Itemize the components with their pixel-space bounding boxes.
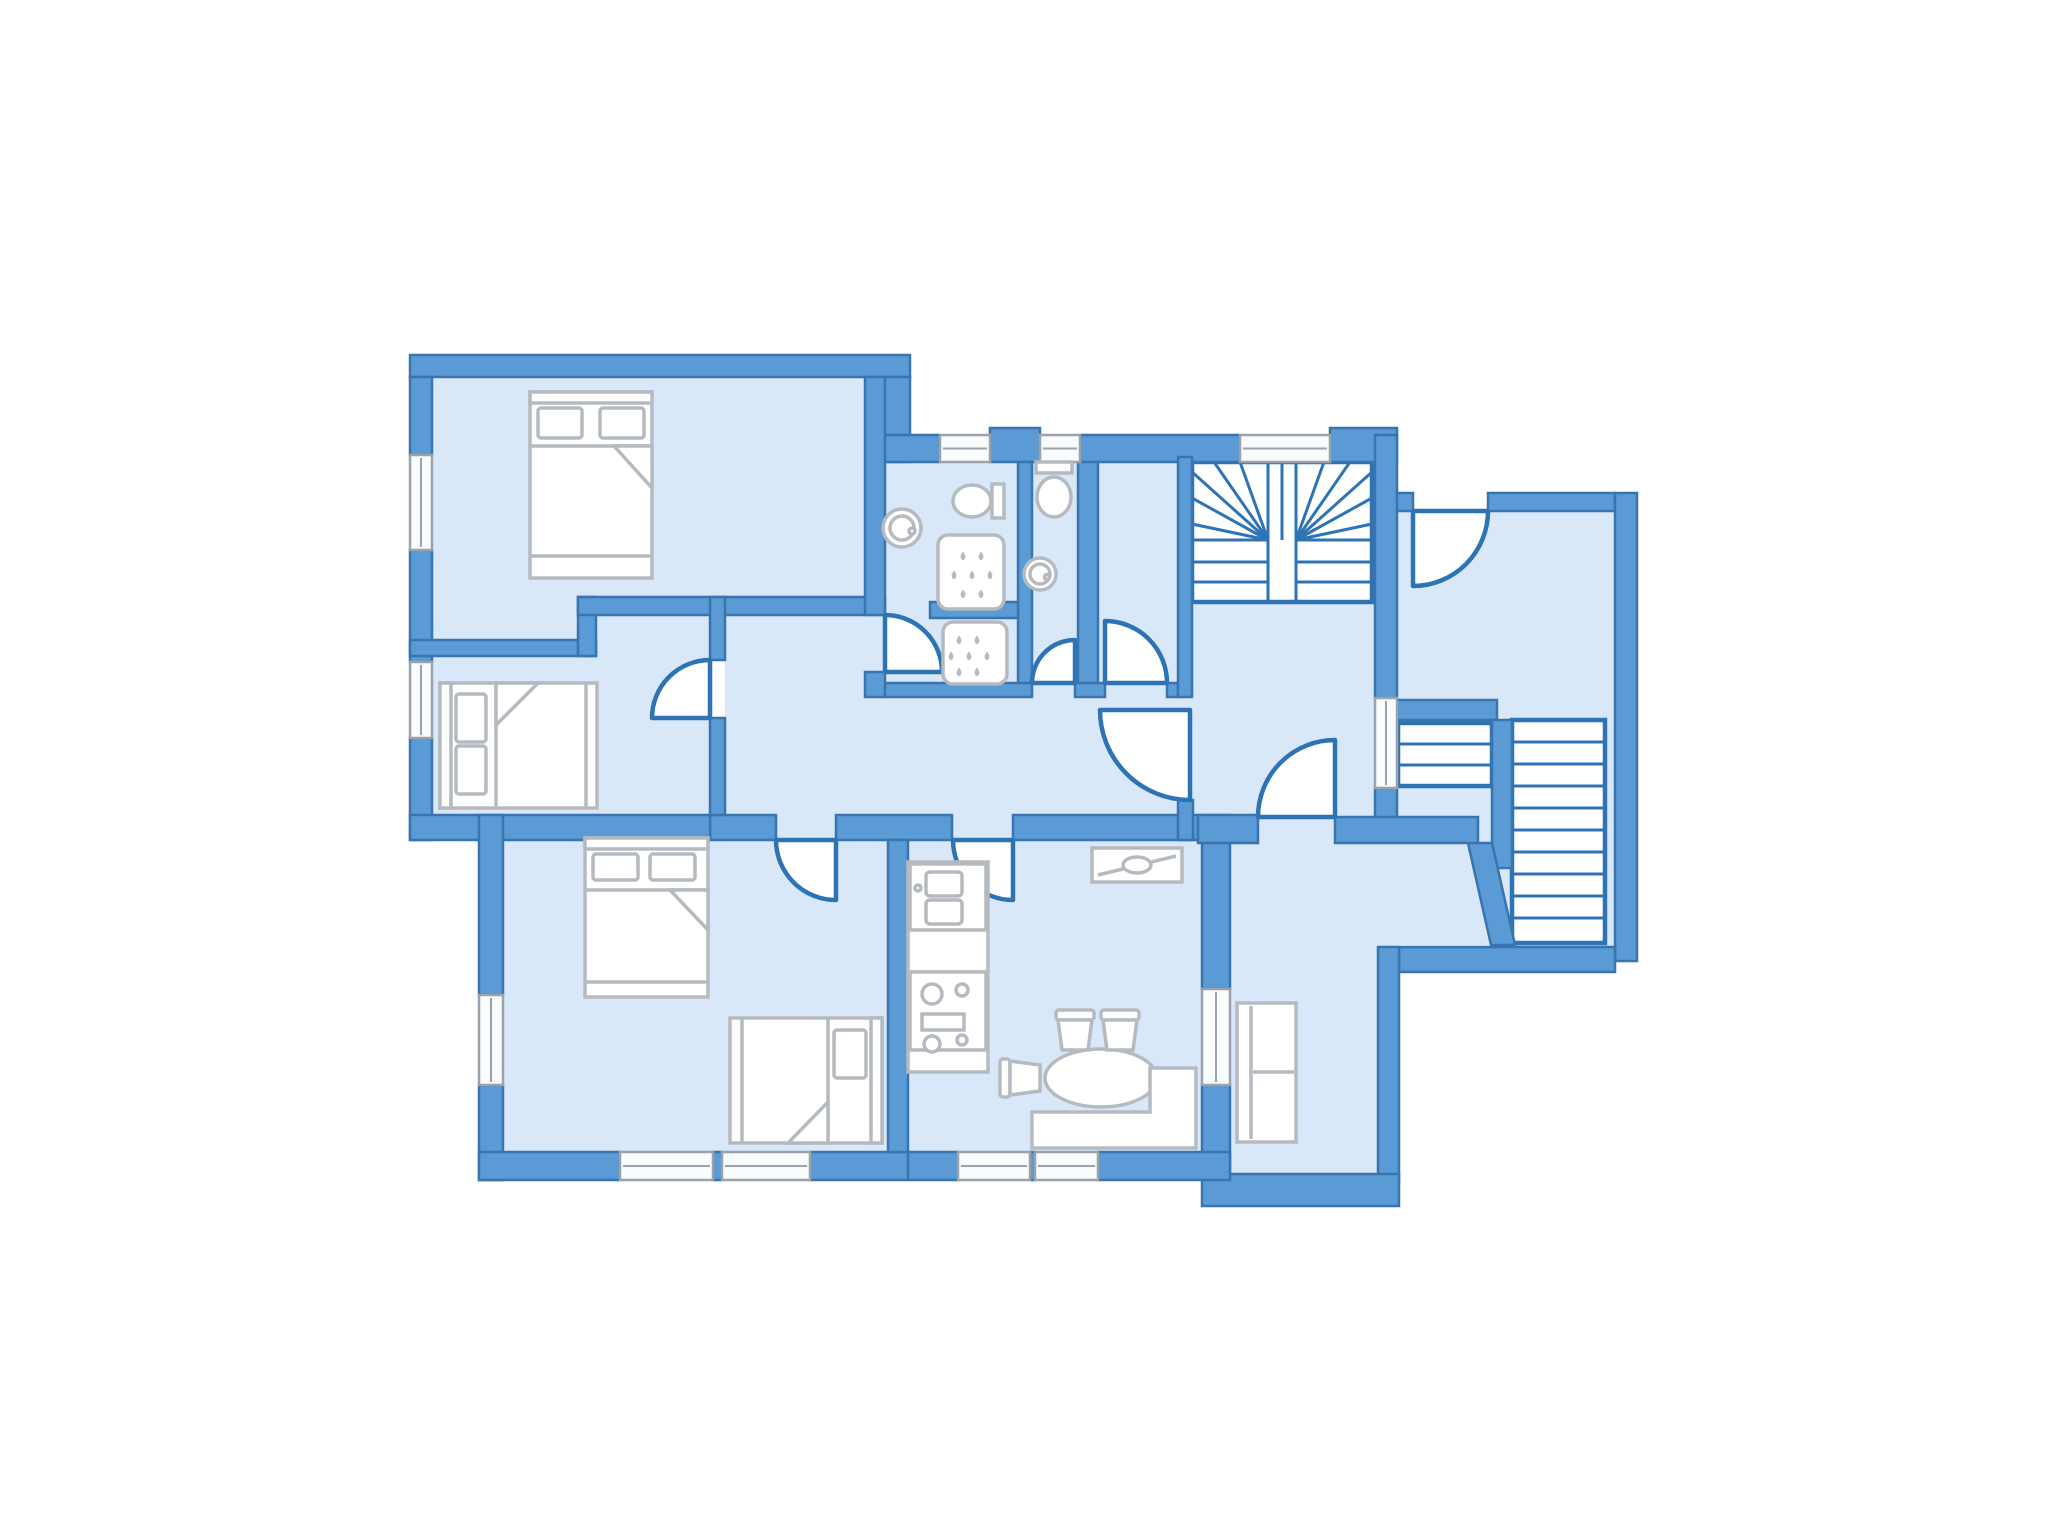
bed3-headboard [585, 838, 708, 849]
wall-stairhall-west-stub [1178, 800, 1193, 840]
kitchen-stove [910, 972, 986, 1050]
wall-bed3-west-1 [479, 815, 503, 995]
kitchen-sink-basin [926, 900, 962, 924]
dining-chair-seat [1010, 1061, 1040, 1095]
stove-burner [956, 984, 968, 996]
bed2-pillow [456, 746, 486, 794]
bath2-toilet-bowl [1037, 477, 1071, 517]
bath1-shower-2 [943, 622, 1007, 684]
wall-rightroom-top [1488, 493, 1615, 511]
dining-chair-seat [1058, 1020, 1092, 1050]
bed2-pillow [456, 694, 486, 742]
wall-bed1-east [865, 377, 885, 615]
wall-rightroom-top-jamb [1397, 493, 1413, 511]
bath1-toilet-tank [992, 484, 1004, 518]
landing-stair-box [1398, 723, 1492, 786]
wall-bath-bottom-2 [1075, 683, 1105, 697]
bed1-pillow [600, 408, 644, 438]
wall-bed1-bottom-left [410, 640, 596, 656]
wall-stair-divider [1492, 720, 1512, 868]
wall-hall-bottom-2 [836, 815, 952, 840]
wall-stairzone-bottom [1399, 947, 1615, 972]
bed3-pillow [650, 854, 695, 880]
floor-plan-stage [0, 0, 2048, 1536]
wall-bath-top-2 [990, 428, 1040, 462]
wall-hall-bottom-3 [1013, 815, 1198, 840]
wall-living-east [1378, 947, 1399, 1182]
bed2-headboard [440, 683, 451, 808]
wall-left-1 [410, 377, 432, 455]
bed1-pillow [538, 408, 582, 438]
wall-living-top [1335, 817, 1478, 843]
wall-bath-top-1 [885, 435, 940, 462]
bath1-toilet-bowl [953, 485, 991, 517]
radiator-ellipse [1123, 857, 1151, 873]
wall-bath-divider-2 [1078, 462, 1098, 683]
wall-hall-bottom-4 [1198, 815, 1258, 843]
wall-closet-east [1178, 457, 1192, 697]
stove-burner [922, 984, 942, 1004]
dining-table [1045, 1049, 1157, 1107]
wall-kitchen-west [888, 840, 908, 1152]
wall-bed1-bottom-right [578, 597, 885, 615]
kitchen-sink-basin [926, 872, 962, 896]
wall-living-bottom [1202, 1174, 1399, 1206]
wall-bottom-1 [479, 1152, 620, 1180]
bed3-pillow [593, 854, 638, 880]
wall-top [410, 355, 910, 377]
wall-bed2-east-1 [710, 597, 725, 660]
wall-bed1-east-low [865, 672, 885, 697]
wall-bottom-div1 [713, 1152, 722, 1180]
wall-bath-top-3 [1080, 435, 1240, 462]
wall-east-outer [1615, 493, 1637, 961]
wall-stairhall-east-1 [1375, 435, 1397, 698]
wall-bottom-2 [810, 1152, 908, 1180]
wall-bed2-east-2 [710, 718, 725, 815]
stove-burner [924, 1036, 940, 1052]
stove-panel [922, 1014, 964, 1030]
floor-plan [0, 0, 2048, 1536]
wall-bottom-4 [1098, 1152, 1230, 1180]
wall-bath-bottom-3 [1167, 683, 1178, 697]
wall-rightroom-bottom [1397, 700, 1497, 720]
bath1-sink-drain [909, 528, 915, 534]
wall-hall-bottom-1 [710, 815, 776, 840]
bed1-headboard [530, 392, 652, 403]
stove-burner [957, 1035, 967, 1045]
bath2-sink-drain [1045, 575, 1050, 580]
bed4-headboard [871, 1018, 882, 1143]
bed4-pillow [834, 1030, 866, 1078]
dining-chair-seat [1103, 1020, 1137, 1050]
wall-bottom-3 [908, 1152, 958, 1180]
kitchen-faucet [915, 885, 921, 891]
bath2-toilet-tank [1036, 462, 1072, 473]
